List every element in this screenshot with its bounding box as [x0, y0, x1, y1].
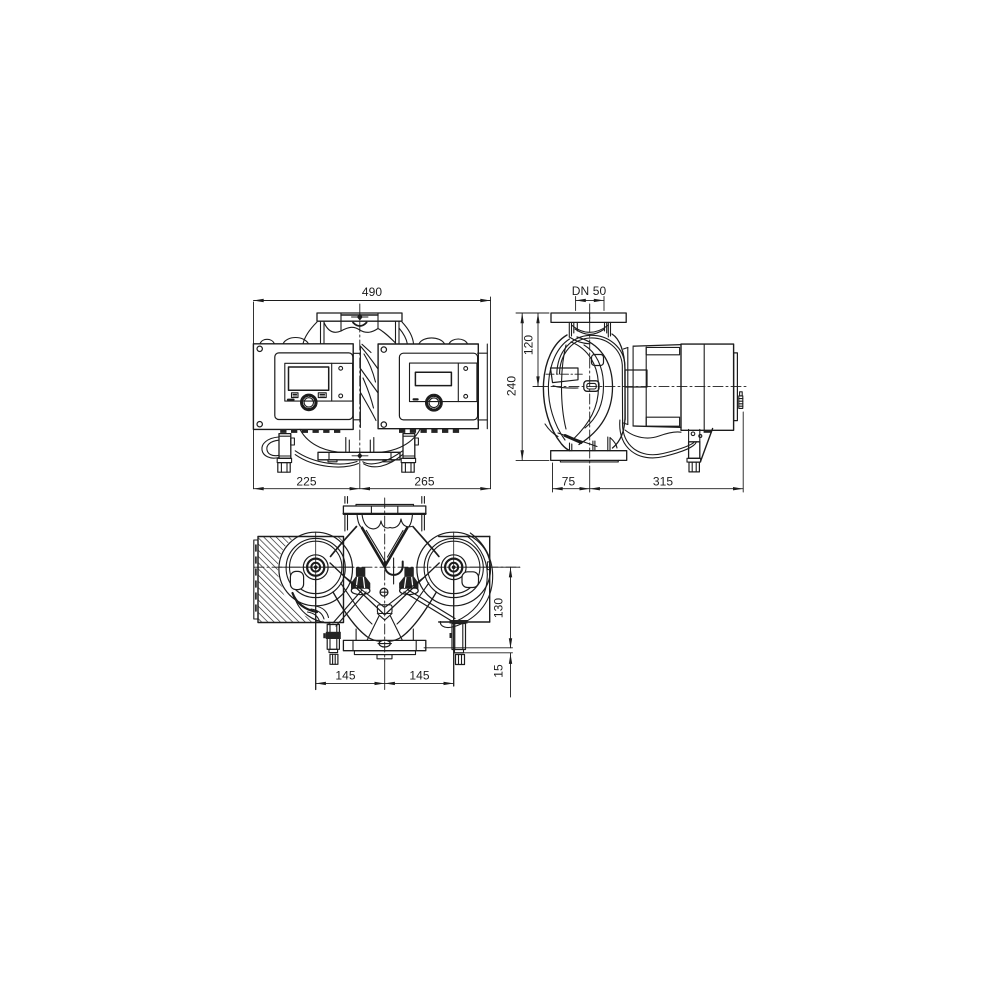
- svg-text:315: 315: [653, 475, 674, 489]
- svg-text:145: 145: [335, 669, 356, 683]
- svg-text:130: 130: [492, 598, 506, 619]
- svg-text:265: 265: [414, 475, 435, 489]
- svg-text:490: 490: [362, 285, 383, 299]
- svg-text:75: 75: [562, 475, 576, 489]
- svg-text:15: 15: [492, 664, 506, 678]
- svg-text:DN 50: DN 50: [572, 284, 607, 298]
- svg-text:120: 120: [522, 335, 536, 356]
- svg-text:145: 145: [409, 669, 430, 683]
- svg-text:225: 225: [296, 475, 317, 489]
- svg-text:240: 240: [505, 376, 519, 397]
